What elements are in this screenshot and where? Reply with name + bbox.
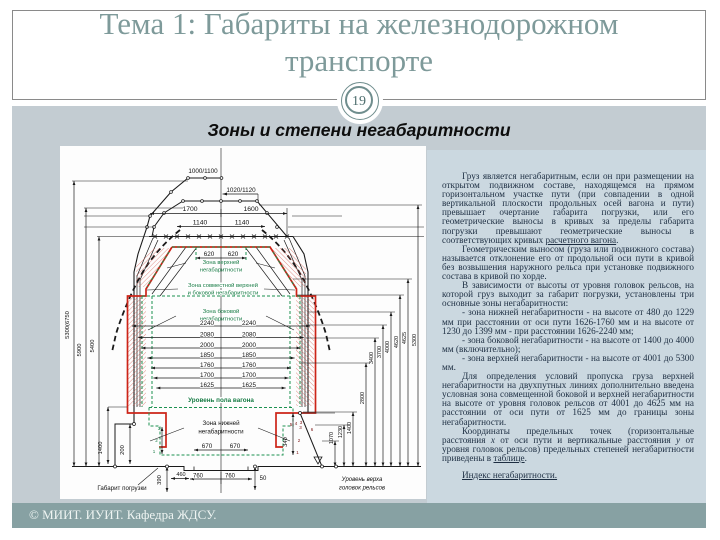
svg-text:Зона боковой: Зона боковой [203, 308, 240, 315]
svg-text:1850: 1850 [200, 352, 215, 359]
svg-text:1070: 1070 [329, 432, 335, 444]
svg-text:4000: 4000 [385, 341, 391, 353]
svg-text:760: 760 [193, 474, 204, 480]
svg-text:1600: 1600 [243, 206, 258, 213]
svg-text:2080: 2080 [242, 331, 257, 338]
svg-text:1000/1100: 1000/1100 [188, 168, 218, 175]
svg-text:200: 200 [120, 445, 126, 455]
svg-text:негабаритности: негабаритности [200, 268, 242, 274]
svg-text:4: 4 [295, 421, 298, 426]
svg-text:670: 670 [202, 443, 213, 450]
svg-text:4620: 4620 [394, 336, 400, 348]
svg-text:Зона совместной верхней: Зона совместной верхней [188, 282, 258, 289]
svg-text:2000: 2000 [200, 342, 215, 349]
svg-text:1760: 1760 [200, 362, 215, 369]
svg-text:2800: 2800 [360, 392, 366, 404]
svg-text:1760: 1760 [242, 362, 257, 369]
svg-text:340: 340 [283, 437, 289, 447]
svg-text:1625: 1625 [242, 382, 257, 389]
svg-text:5900: 5900 [77, 344, 83, 357]
svg-text:1625: 1625 [200, 382, 215, 389]
svg-text:1140: 1140 [193, 220, 208, 227]
svg-text:5300(6750: 5300(6750 [65, 311, 71, 339]
svg-text:3: 3 [299, 425, 302, 430]
svg-text:1230: 1230 [338, 426, 344, 438]
svg-text:1700: 1700 [200, 372, 215, 379]
svg-text:760: 760 [225, 474, 236, 480]
svg-text:3400: 3400 [369, 352, 375, 364]
svg-text:Уровень верха: Уровень верха [341, 477, 383, 483]
svg-text:670: 670 [230, 443, 241, 450]
svg-text:3: 3 [300, 420, 303, 425]
svg-text:460: 460 [176, 472, 185, 478]
svg-text:620: 620 [204, 251, 215, 258]
svg-text:4625: 4625 [402, 332, 408, 344]
svg-text:50: 50 [260, 476, 267, 482]
svg-text:2000: 2000 [242, 342, 257, 349]
svg-text:2: 2 [298, 438, 301, 443]
svg-text:1700: 1700 [182, 206, 197, 213]
svg-text:1: 1 [296, 450, 299, 455]
svg-text:1400: 1400 [347, 422, 353, 434]
svg-text:Зона верхней: Зона верхней [203, 259, 240, 266]
svg-text:6: 6 [311, 427, 314, 432]
svg-text:5300: 5300 [412, 334, 418, 346]
svg-text:1020/1120: 1020/1120 [226, 187, 256, 194]
svg-text:2240: 2240 [200, 320, 215, 327]
svg-text:1: 1 [153, 449, 156, 454]
svg-text:2: 2 [155, 438, 158, 443]
svg-text:и боковой негабаритности: и боковой негабаритности [188, 290, 259, 297]
svg-text:390: 390 [157, 475, 163, 485]
svg-text:2080: 2080 [200, 331, 215, 338]
svg-text:3700: 3700 [377, 346, 383, 358]
svg-text:головок рельсов: головок рельсов [339, 486, 385, 492]
svg-text:Зона нижней: Зона нижней [202, 420, 240, 427]
svg-text:Габарит погрузки: Габарит погрузки [97, 485, 147, 492]
svg-text:5: 5 [290, 422, 293, 427]
svg-text:Уровень пола вагона: Уровень пола вагона [188, 397, 254, 404]
svg-text:620: 620 [228, 251, 239, 258]
svg-text:5400: 5400 [90, 340, 96, 353]
svg-text:1850: 1850 [242, 352, 257, 359]
svg-text:1140: 1140 [235, 220, 250, 227]
svg-text:2240: 2240 [242, 320, 257, 327]
svg-text:негабаритности: негабаритности [198, 429, 244, 436]
svg-text:1700: 1700 [242, 372, 257, 379]
